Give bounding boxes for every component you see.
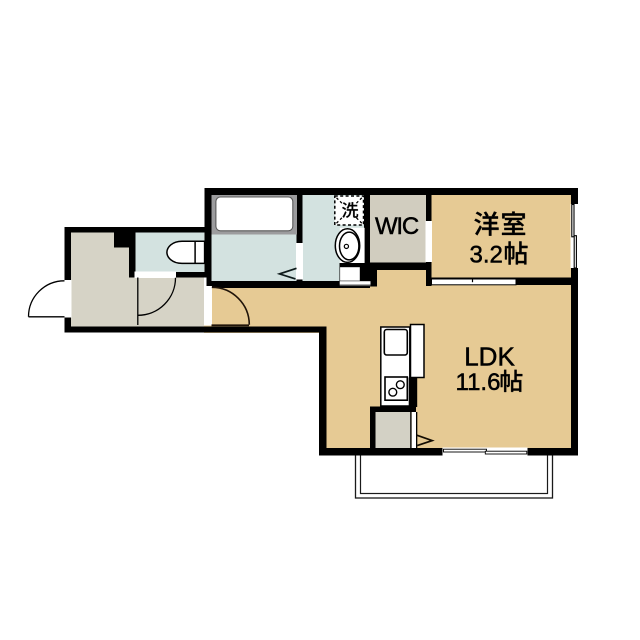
svg-text:3.2: 3.2 — [470, 242, 503, 269]
svg-text:LDK: LDK — [464, 342, 515, 372]
svg-text:WIC: WIC — [375, 213, 419, 240]
svg-text:11.6: 11.6 — [456, 369, 501, 396]
